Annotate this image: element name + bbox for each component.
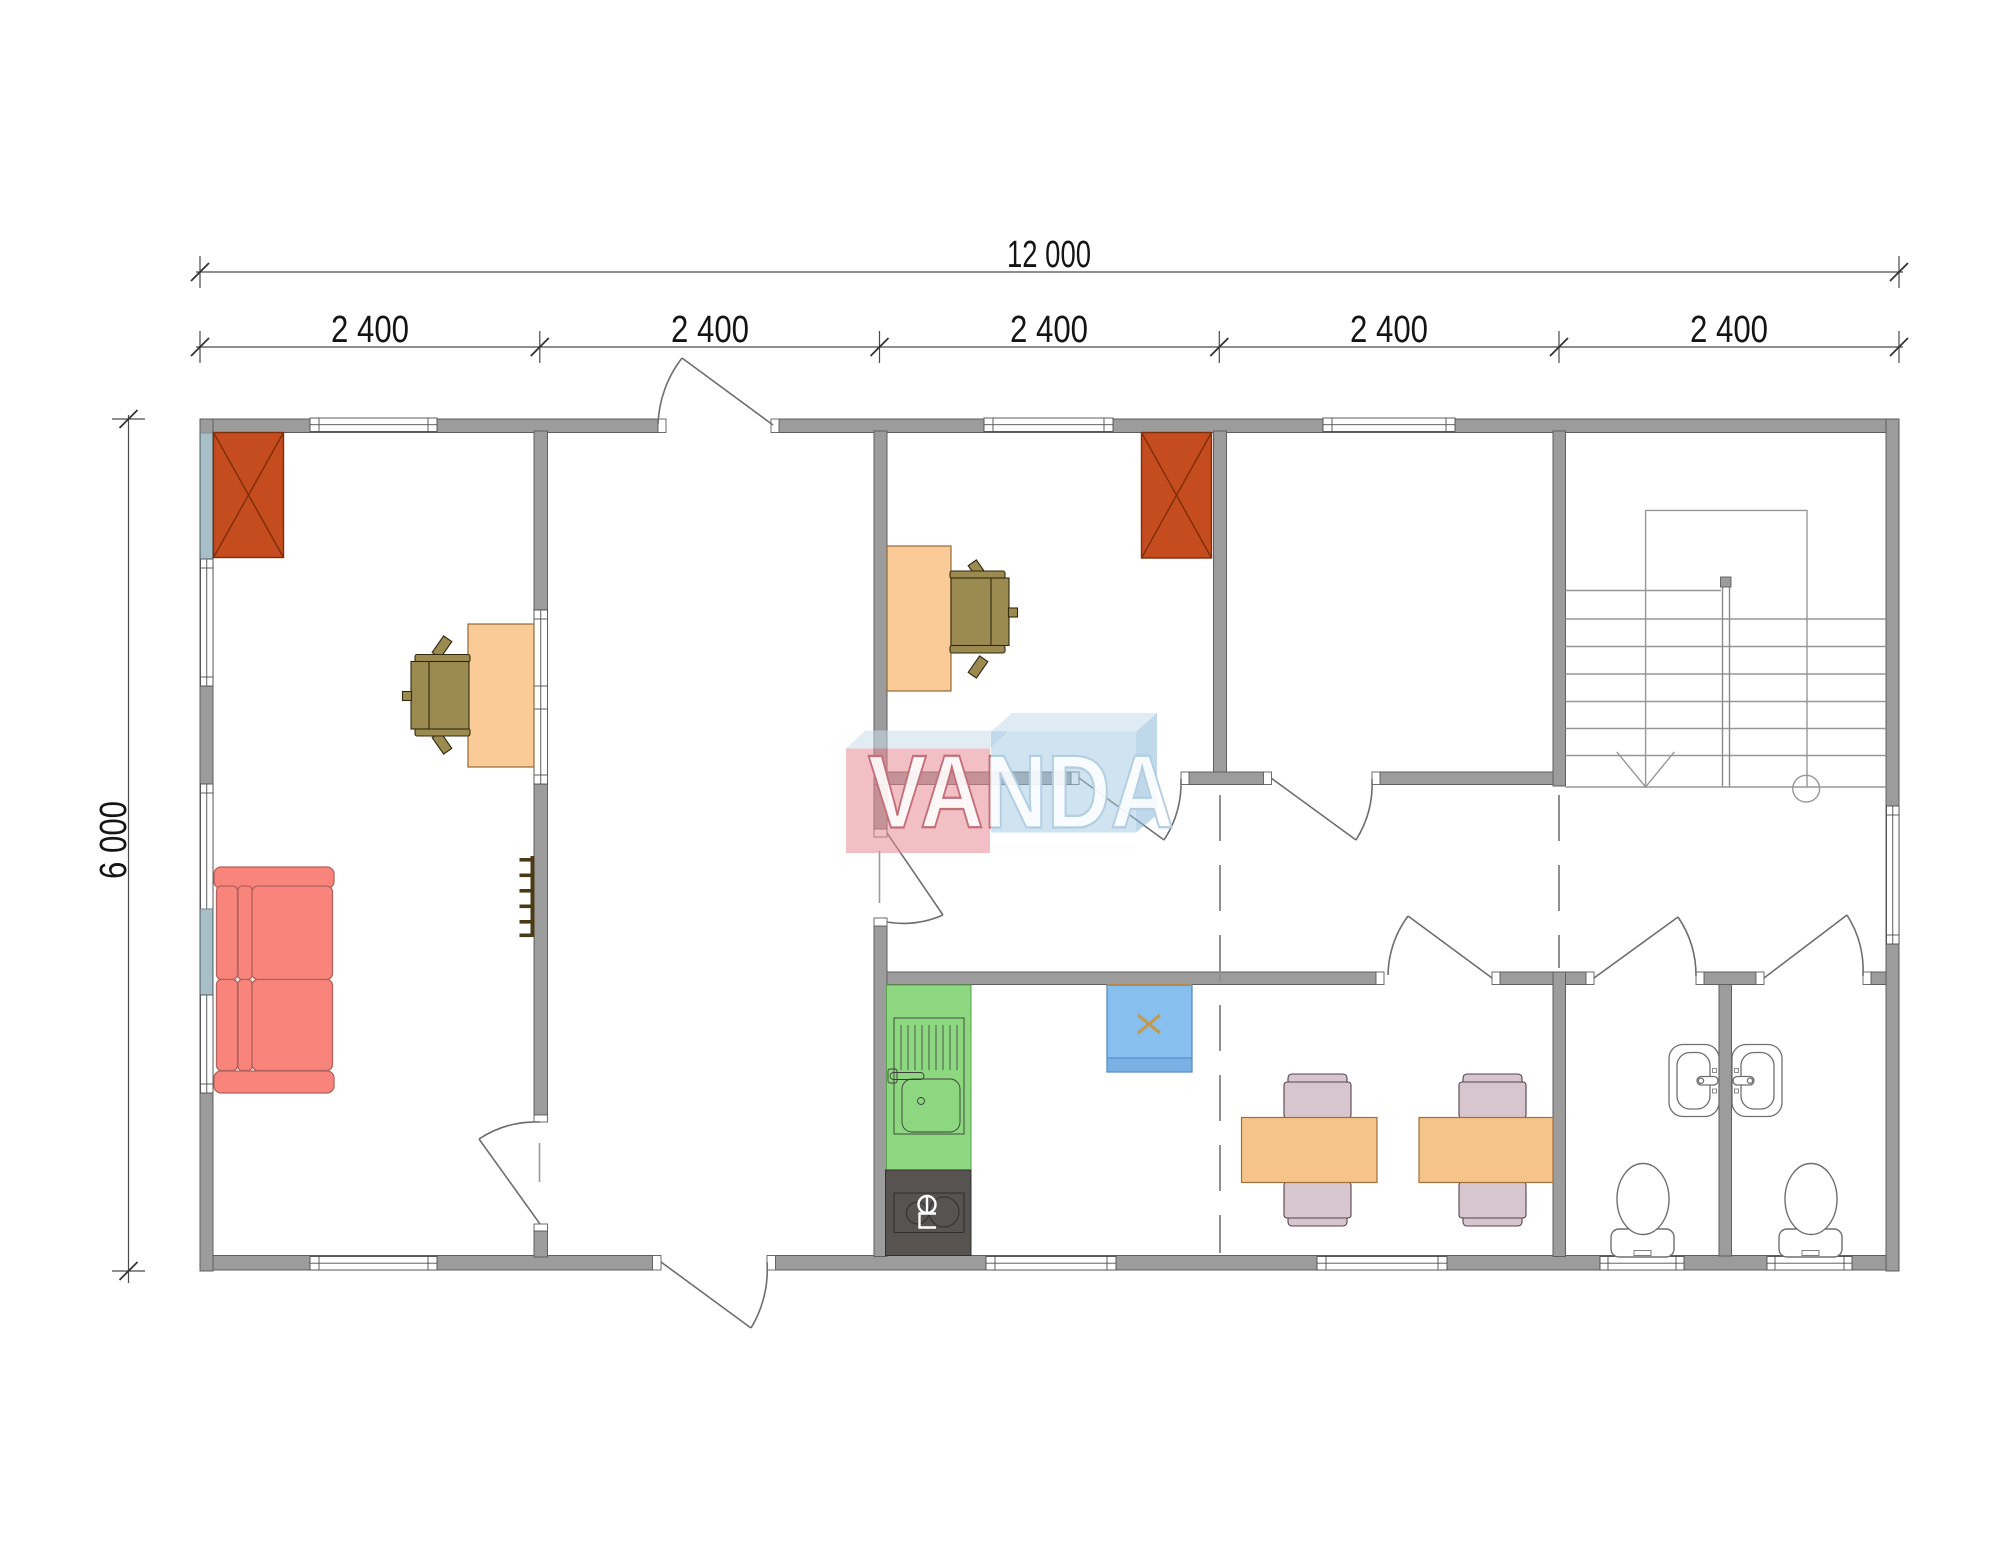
svg-text:6 000: 6 000 — [93, 801, 135, 879]
svg-text:2 400: 2 400 — [1010, 309, 1088, 351]
svg-text:12 000: 12 000 — [1007, 234, 1091, 276]
svg-text:2 400: 2 400 — [1690, 309, 1768, 351]
svg-text:2 400: 2 400 — [331, 309, 409, 351]
svg-text:2 400: 2 400 — [1350, 309, 1428, 351]
svg-text:2 400: 2 400 — [671, 309, 749, 351]
